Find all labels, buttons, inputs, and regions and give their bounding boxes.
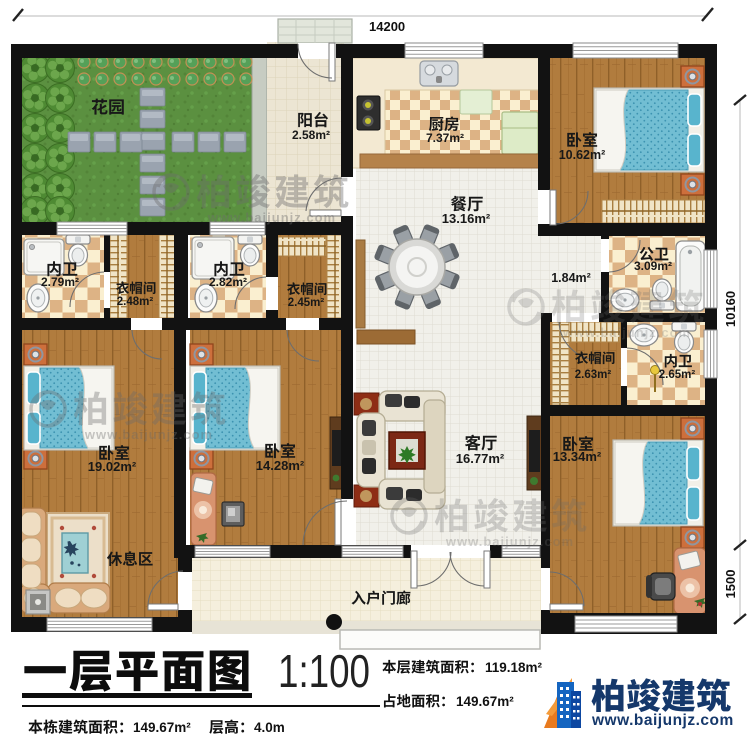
svg-text:16.77m²: 16.77m² bbox=[456, 451, 505, 466]
svg-text:1500: 1500 bbox=[723, 570, 738, 599]
svg-text:www.baijunjz.com: www.baijunjz.com bbox=[591, 712, 734, 729]
svg-text:13.34m²: 13.34m² bbox=[553, 449, 602, 464]
svg-text:14200: 14200 bbox=[369, 19, 405, 34]
svg-text:2.48m²: 2.48m² bbox=[117, 296, 154, 308]
svg-text:2.58m²: 2.58m² bbox=[292, 128, 330, 142]
svg-text:7.37m²: 7.37m² bbox=[426, 131, 464, 145]
svg-text:1:100: 1:100 bbox=[278, 645, 370, 697]
svg-text:2.45m²: 2.45m² bbox=[288, 297, 325, 309]
svg-text:3.09m²: 3.09m² bbox=[634, 259, 672, 273]
svg-text:2.82m²: 2.82m² bbox=[209, 275, 247, 289]
svg-text:2.63m²: 2.63m² bbox=[575, 369, 612, 381]
svg-text:1.84m²: 1.84m² bbox=[551, 271, 591, 285]
svg-text:14.28m²: 14.28m² bbox=[256, 458, 305, 473]
svg-text:10.62m²: 10.62m² bbox=[559, 148, 606, 162]
svg-text:13.16m²: 13.16m² bbox=[442, 211, 491, 226]
svg-text:10160: 10160 bbox=[723, 291, 738, 327]
svg-text:2.65m²: 2.65m² bbox=[659, 369, 696, 381]
svg-text:119.18m²: 119.18m² bbox=[485, 660, 543, 675]
svg-text:149.67m²: 149.67m² bbox=[456, 694, 514, 709]
svg-text:149.67m²: 149.67m² bbox=[133, 720, 191, 735]
svg-text:19.02m²: 19.02m² bbox=[88, 459, 137, 474]
svg-text:4.0m: 4.0m bbox=[254, 720, 285, 735]
svg-text:2.79m²: 2.79m² bbox=[41, 275, 79, 289]
